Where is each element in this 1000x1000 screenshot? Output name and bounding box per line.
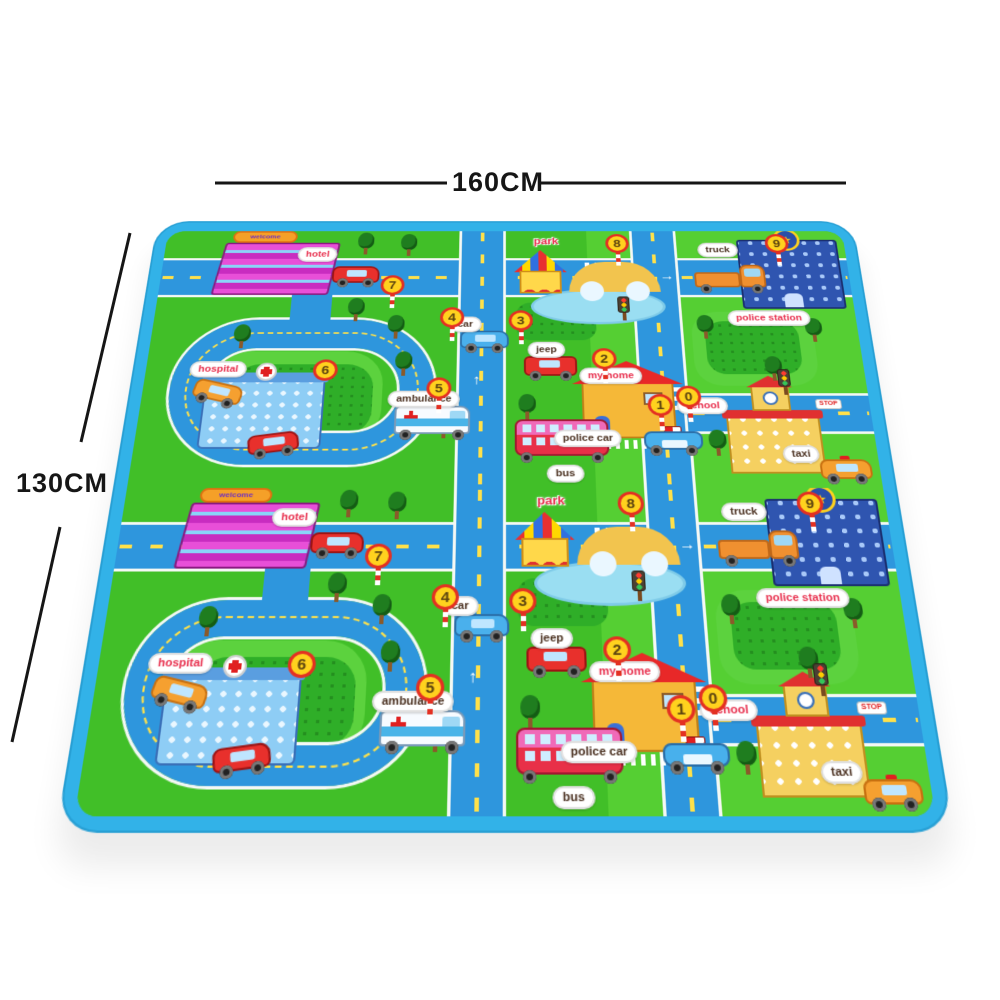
carousel-tent <box>515 512 575 567</box>
red-cross-icon <box>222 655 248 678</box>
grass-patch-dark <box>704 321 804 374</box>
police-car-window <box>683 754 713 764</box>
police-car-vehicle <box>662 736 732 774</box>
traffic-light-box <box>812 663 829 685</box>
wheel-icon <box>445 741 459 754</box>
car-window <box>471 619 494 628</box>
truck-vehicle <box>693 262 769 294</box>
wheel-icon <box>344 547 357 558</box>
wheel-icon <box>492 343 503 353</box>
red-cross-icon <box>255 363 278 381</box>
wheel-icon <box>530 371 542 381</box>
wheel-icon <box>567 665 580 678</box>
taxi-label: taxi <box>820 761 864 784</box>
hotel-welcome-sign: welcome <box>233 231 299 243</box>
school-building <box>726 416 827 474</box>
road-connector <box>289 292 332 323</box>
car-window <box>168 683 194 698</box>
city-map-tile: ↑ ↑ → welcome ★ hote <box>74 488 935 816</box>
police-car-label: police car <box>560 741 638 763</box>
road-marker-3: 3 <box>509 588 536 614</box>
wheel-icon <box>521 452 533 463</box>
tree-icon <box>395 351 413 375</box>
road-arrow-icon: ↑ <box>472 374 480 387</box>
height-dimension-line-top <box>81 233 130 442</box>
wheel-icon <box>592 452 604 463</box>
tree-icon <box>520 695 540 728</box>
height-dimension-label: 130CM <box>16 468 108 499</box>
tree-icon <box>735 741 758 775</box>
wheel-icon <box>650 445 662 456</box>
tent-base <box>521 538 569 567</box>
wheel-icon <box>783 555 797 567</box>
tent-base <box>520 271 562 294</box>
truck-bed <box>718 540 771 559</box>
road-marker-0: 0 <box>675 386 702 408</box>
police-car-vehicle <box>643 426 704 456</box>
traffic-light-box <box>617 296 630 312</box>
tree-icon <box>380 640 401 671</box>
road-center-dashes <box>474 490 482 814</box>
police-car-window <box>662 440 688 448</box>
tree-icon <box>720 594 742 624</box>
wheel-icon <box>490 630 503 642</box>
road-marker-2: 2 <box>592 348 618 369</box>
wheel-icon <box>385 741 399 754</box>
tree-icon <box>357 233 375 255</box>
wheel-icon <box>560 371 572 381</box>
park-label: park <box>534 235 559 246</box>
hotel-label: hotel <box>271 508 317 527</box>
truck-cab <box>739 265 767 288</box>
wheel-icon <box>460 630 473 642</box>
mat-tile-top: ↑ ↑ → welcome ★ hote <box>127 231 883 488</box>
stop-sign: STOP <box>856 701 887 714</box>
ambulance-stripe <box>381 727 463 737</box>
tree-icon <box>327 572 348 602</box>
wheel-icon <box>701 284 713 293</box>
road-center-dashes <box>478 233 484 487</box>
tree-icon <box>708 430 728 456</box>
jeep-label: jeep <box>528 342 566 358</box>
city-map-tile: ↑ ↑ → welcome ★ hote <box>127 231 883 488</box>
clock-icon <box>796 692 815 709</box>
traffic-light-pole <box>623 313 627 321</box>
truck-label: truck <box>720 503 767 521</box>
grass-patch-dark <box>729 602 843 670</box>
wheel-icon <box>281 445 293 457</box>
jeep-label: jeep <box>530 628 573 649</box>
stop-sign: STOP <box>815 399 842 409</box>
wheel-icon <box>337 278 349 287</box>
road-marker-8: 8 <box>605 234 629 253</box>
wheel-icon <box>670 761 684 775</box>
red-car-vehicle <box>331 266 380 287</box>
truck-label: truck <box>697 243 739 258</box>
play-mat: ↑ ↑ → welcome ★ hote <box>58 223 951 831</box>
tree-icon <box>400 234 417 256</box>
wheel-icon <box>362 278 374 287</box>
traffic-light-box <box>777 369 792 386</box>
wheel-icon <box>752 284 764 293</box>
play-mat-surface: ↑ ↑ → welcome ★ hote <box>74 231 935 816</box>
traffic-light-icon <box>631 571 647 602</box>
tree-icon <box>347 298 365 321</box>
wheel-icon <box>725 555 738 567</box>
police-station-label: police station <box>727 310 811 326</box>
width-dimension-label: 160CM <box>452 167 544 198</box>
tree-icon <box>232 324 252 348</box>
my-home-label: my home <box>589 661 661 682</box>
blue-car-vehicle <box>454 614 509 642</box>
traffic-light-pole <box>638 591 643 601</box>
taxi-vehicle <box>819 459 874 484</box>
police-station-label: police station <box>755 588 850 608</box>
road-marker-8: 8 <box>617 492 644 516</box>
taxi-label: taxi <box>782 445 821 463</box>
tree-icon <box>339 490 359 518</box>
jeep-vehicle <box>524 356 578 381</box>
road-arrow-icon: → <box>659 271 674 283</box>
hospital-label: hospital <box>147 653 214 674</box>
road-marker-1: 1 <box>647 394 674 416</box>
tree-icon <box>197 606 220 636</box>
car-window <box>263 436 285 446</box>
height-dimension-line-bottom <box>12 527 60 742</box>
road-marker-2: 2 <box>603 636 632 663</box>
road-arrow-icon: → <box>679 538 697 553</box>
carousel-tent <box>514 250 567 293</box>
wheel-icon <box>533 665 546 678</box>
police-car-label: police car <box>554 430 623 447</box>
tree-icon <box>387 492 406 520</box>
school-building <box>756 723 872 797</box>
ambulance-stripe <box>396 419 468 427</box>
mat-tile-bottom: ↑ ↑ → welcome ★ hote <box>74 488 935 816</box>
wheel-icon <box>315 547 328 558</box>
tent-canopy <box>514 250 567 272</box>
road-connector <box>262 565 311 604</box>
truck-window <box>773 535 793 545</box>
wheel-icon <box>710 761 725 775</box>
road-marker-3: 3 <box>509 310 533 330</box>
tree-icon <box>696 315 715 339</box>
car-window <box>475 335 496 342</box>
taxi-window <box>881 785 907 795</box>
car-window <box>327 537 350 546</box>
road-arrow-icon: ↑ <box>468 670 477 687</box>
tree-icon <box>372 594 392 624</box>
truck-cab <box>768 530 800 559</box>
car-window <box>230 749 255 762</box>
tent-canopy <box>515 512 574 540</box>
taxi-vehicle <box>862 779 926 811</box>
traffic-light-box <box>631 571 646 592</box>
ambulance-vehicle <box>378 710 465 754</box>
jeep-window <box>539 360 560 367</box>
truck-window <box>744 269 761 277</box>
jeep-window <box>543 652 567 661</box>
wheel-icon <box>251 760 265 775</box>
taxi-window <box>836 464 859 472</box>
traffic-light-pole <box>820 685 826 696</box>
my-home-label: my home <box>579 368 643 384</box>
red-car-vehicle <box>309 532 364 559</box>
wheel-icon <box>827 474 840 485</box>
wheel-icon <box>604 770 618 784</box>
ambulance-vehicle <box>393 406 470 440</box>
vertical-road-left <box>450 488 503 816</box>
police-station-door <box>784 293 804 307</box>
hospital-label: hospital <box>189 361 248 377</box>
tree-icon <box>387 315 405 339</box>
hotel-welcome-sign: welcome <box>199 488 273 503</box>
truck-vehicle <box>716 527 802 567</box>
wheel-icon <box>399 430 411 440</box>
blue-car-vehicle <box>460 331 509 353</box>
bus-label: bus <box>552 786 595 809</box>
car-window <box>347 270 367 277</box>
wheel-icon <box>219 765 233 780</box>
jeep-vehicle <box>526 647 587 678</box>
wheel-icon <box>523 770 537 784</box>
traffic-light-pole <box>783 387 788 395</box>
wheel-icon <box>465 343 476 353</box>
tree-icon <box>518 394 536 419</box>
clock-icon <box>762 392 779 405</box>
wheel-icon <box>686 445 699 456</box>
police-station-door <box>819 567 842 585</box>
bus-label: bus <box>547 465 585 483</box>
wheel-icon <box>254 448 266 460</box>
vertical-road-left <box>457 231 503 488</box>
hotel-label: hotel <box>297 247 338 262</box>
traffic-light-icon <box>617 296 631 321</box>
wheel-icon <box>452 430 464 440</box>
product-photo: 160CM 130CM ↑ ↑ → welcome ★ <box>0 0 1000 1000</box>
car-window <box>208 385 231 397</box>
park-label: park <box>537 493 565 507</box>
